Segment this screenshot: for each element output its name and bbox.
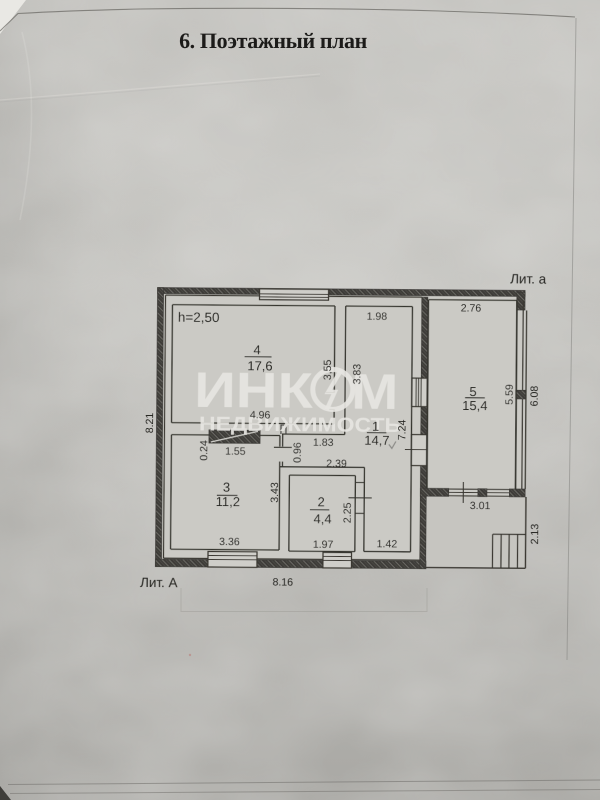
svg-text:1.83: 1.83 xyxy=(313,437,334,449)
svg-text:3.83: 3.83 xyxy=(351,364,363,385)
svg-text:15,4: 15,4 xyxy=(462,398,487,413)
svg-text:0.96: 0.96 xyxy=(292,442,304,463)
svg-text:Лит. А: Лит. А xyxy=(140,575,178,590)
svg-text:0.24: 0.24 xyxy=(198,440,210,461)
svg-text:6.08: 6.08 xyxy=(529,386,541,407)
svg-text:4,4: 4,4 xyxy=(313,511,331,526)
svg-text:h=2,50: h=2,50 xyxy=(178,310,220,325)
svg-text:7.24: 7.24 xyxy=(396,419,408,440)
svg-text:3.43: 3.43 xyxy=(269,482,281,503)
svg-text:8.16: 8.16 xyxy=(272,576,293,588)
svg-text:4.96: 4.96 xyxy=(250,409,271,421)
svg-text:1.98: 1.98 xyxy=(367,311,388,323)
svg-text:5: 5 xyxy=(469,384,476,399)
svg-text:3.01: 3.01 xyxy=(470,500,491,512)
svg-text:3: 3 xyxy=(223,479,230,494)
svg-text:11,2: 11,2 xyxy=(216,494,240,509)
svg-text:Лит. а: Лит. а xyxy=(510,271,547,286)
svg-text:1.97: 1.97 xyxy=(313,539,334,551)
svg-text:1.55: 1.55 xyxy=(225,446,246,458)
svg-text:4: 4 xyxy=(253,342,260,357)
svg-text:3,55: 3,55 xyxy=(322,359,334,380)
svg-text:2.76: 2.76 xyxy=(461,302,482,314)
svg-text:2: 2 xyxy=(318,494,325,509)
svg-text:6. Поэтажный план: 6. Поэтажный план xyxy=(179,28,368,53)
svg-text:8.21: 8.21 xyxy=(144,413,156,434)
svg-text:2.39: 2.39 xyxy=(326,458,347,470)
svg-text:3.36: 3.36 xyxy=(219,536,240,548)
svg-text:2.13: 2.13 xyxy=(529,524,541,545)
svg-text:14,7: 14,7 xyxy=(364,433,389,448)
svg-text:1.42: 1.42 xyxy=(377,538,398,550)
svg-text:5.59: 5.59 xyxy=(504,384,516,405)
svg-text:1: 1 xyxy=(372,419,379,434)
svg-text:17,6: 17,6 xyxy=(247,358,272,373)
svg-text:2.25: 2.25 xyxy=(342,502,354,523)
